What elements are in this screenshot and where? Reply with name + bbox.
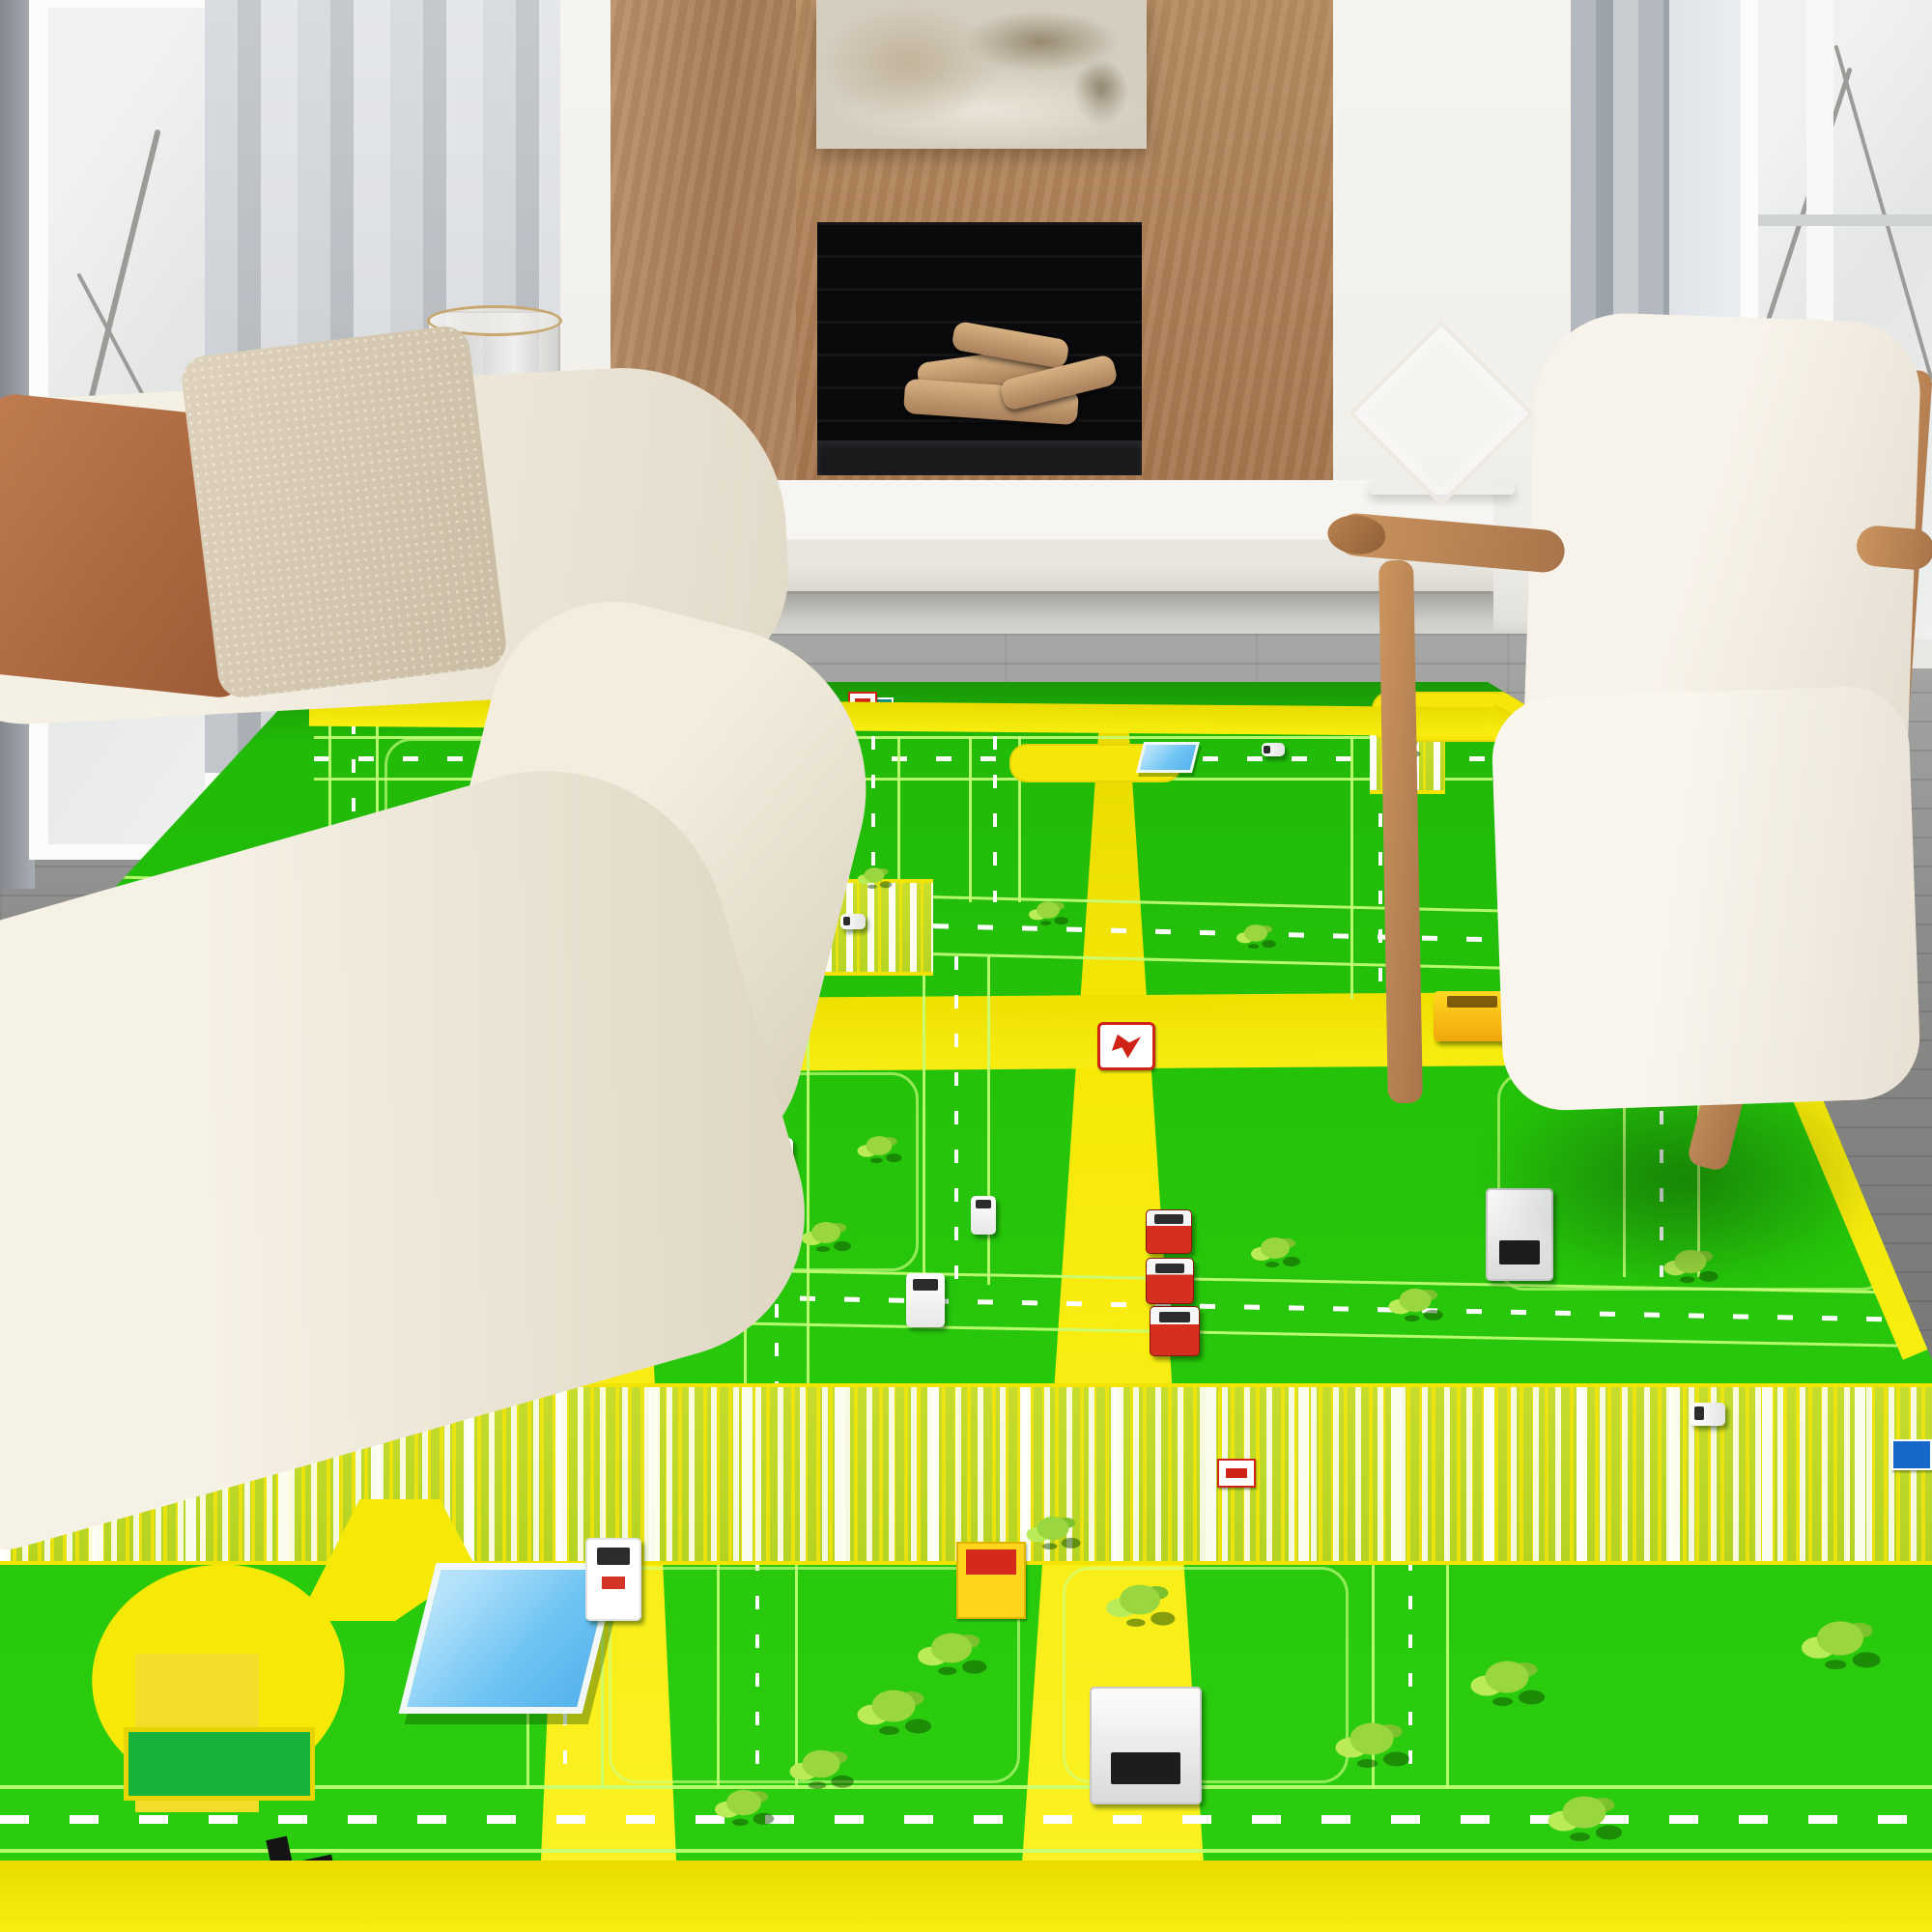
car-h-vehicle [1262,743,1285,756]
tree [811,1222,840,1243]
right-window-bar [1756,214,1932,226]
car-h-vehicle [840,914,866,929]
red-vehicle [1146,1258,1194,1304]
tree [867,1136,893,1155]
red-vehicle [1150,1306,1200,1356]
tree [803,1750,840,1778]
car-vehicle [906,1273,945,1327]
firebox-gravel [817,440,1142,475]
rug-border-near [0,1861,1932,1932]
tree [872,1690,916,1722]
tree [1350,1723,1394,1755]
pool [1136,742,1200,773]
ambulance-vehicle [585,1538,641,1621]
redbox-sign [1217,1459,1256,1488]
tree [865,867,885,882]
car-h-vehicle [1690,1403,1725,1426]
firebox [817,222,1142,475]
tree [931,1634,972,1663]
redtop-sign [956,1542,1026,1619]
yield-sign [1097,1022,1155,1070]
tree [1261,1237,1290,1259]
tree [1817,1621,1863,1655]
armchair-seat-cushion [1491,685,1922,1113]
whitebus-vehicle [1090,1687,1202,1804]
red-vehicle [1146,1209,1192,1254]
tree [1037,901,1060,919]
living-room-scene: 311 [0,0,1932,1932]
tree [1563,1797,1606,1829]
abstract-wall-art [816,0,1147,149]
bluebox-sign [1891,1439,1932,1470]
tree [1486,1662,1529,1693]
beige-pillow [179,324,508,700]
tree [1244,924,1267,942]
tree [1037,1517,1069,1540]
tree [1120,1585,1160,1615]
tree [726,1790,761,1815]
car-vehicle [971,1196,996,1235]
